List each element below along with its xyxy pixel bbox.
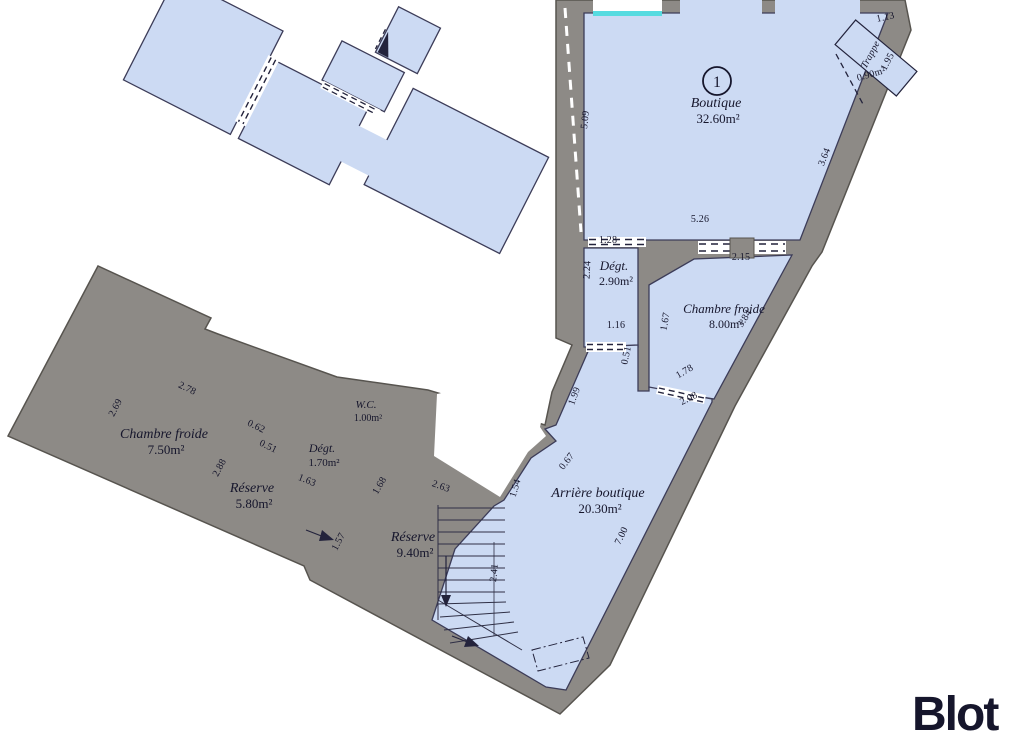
dimension-label: 5.09	[579, 110, 592, 129]
storefront-window	[593, 11, 662, 16]
room-area-label: 8.00m²	[709, 317, 743, 331]
svg-text:1: 1	[713, 74, 721, 91]
room-area-label: 1.00m²	[354, 413, 382, 424]
dimension-label: 2.15	[732, 252, 750, 263]
storefront-frame	[593, 0, 662, 12]
floor-plan-page: 1 5.091.131.953.645.261.282.242.151.673.…	[0, 0, 1024, 749]
dimension-label: 1.28	[599, 235, 617, 246]
dimension-label: 2.41	[488, 563, 501, 582]
room-area-label: 20.30m²	[578, 501, 621, 516]
room-area-label: 5.80m²	[236, 496, 273, 511]
boutique-top-opening-1	[680, 0, 762, 14]
room-reserve-9	[364, 88, 548, 253]
opening-1-16	[586, 342, 626, 352]
room-name-label: Boutique	[691, 96, 742, 111]
room-name-label: Chambre froide	[120, 427, 208, 442]
room-area-label: 2.90m²	[599, 274, 633, 288]
dimension-label: 1.16	[607, 320, 625, 331]
boutique-top-opening-2	[775, 0, 860, 14]
room-name-label: Réserve	[390, 530, 435, 545]
room-name-label: Dégt.	[308, 441, 335, 455]
room-area-label: 32.60m²	[696, 111, 739, 126]
room-name-label: Réserve	[229, 481, 274, 496]
room-name-label: Dégt.	[599, 258, 629, 273]
room-area-label: 9.40m²	[397, 545, 434, 560]
room-name-label: Chambre froide	[683, 301, 765, 316]
blot-logo: Blot	[912, 688, 999, 741]
dimension-label: 2.24	[582, 260, 594, 279]
room-area-label: 1.70m²	[308, 457, 340, 469]
dimension-label: 5.26	[691, 214, 709, 225]
room-area-label: 7.50m²	[148, 442, 185, 457]
room-name-label: Arrière boutique	[550, 486, 644, 501]
room-name-label: W.C.	[356, 399, 377, 411]
